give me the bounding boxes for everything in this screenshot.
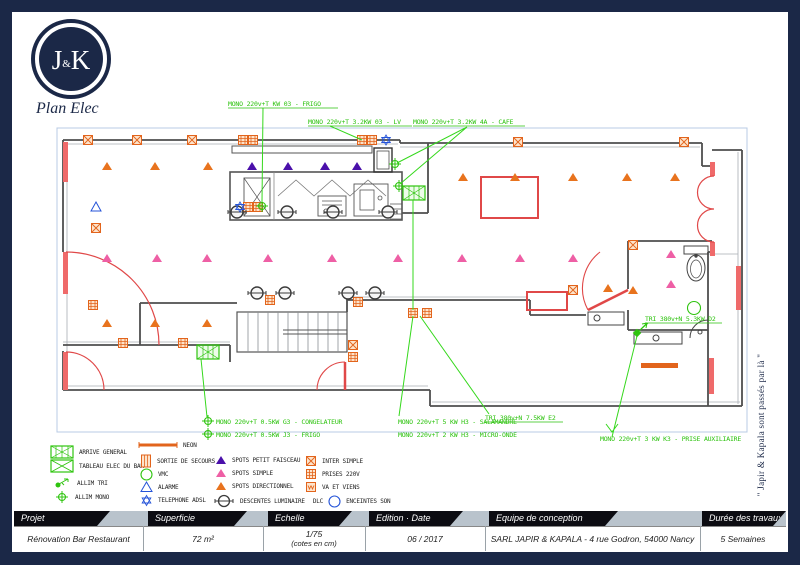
spots-simples [102,250,676,288]
alarme-icon [140,481,153,493]
titleblock-value-projet: Rénovation Bar Restaurant [14,526,143,551]
spots-petit-faisceau [247,162,362,170]
spot-petit-faisceau-icon [215,455,227,465]
arrive-general-symbol [197,345,219,359]
echelle-unit-note: (cotes en cm) [263,539,365,548]
legend-label: SORTIE DE SECOURS [157,458,215,465]
annotation-lv: MONO 220v+T 3.2KW 03 - LV [308,118,401,126]
titleblock-header-edition: Edition · Date [369,511,463,526]
legend-item-spots-simple: SPOTS SIMPLE [215,468,273,478]
annotation-cafe: MONO 220v+T 3.2KW 4A - CAFE [413,118,514,126]
arrive-general-icon [50,445,74,459]
dlc-tag: DLC [313,498,323,505]
telephone-adsl-icon [140,494,153,507]
prises-220v-icon [305,468,317,480]
legend-label: ALLIM MONO [75,494,109,501]
legend-item-vaviens: VA ET VIENS [305,481,360,493]
legend-item-allim-mono: ALLIM MONO [54,490,109,504]
titleblock-header-duree: Durée des travaux [702,511,786,526]
legend-label: TABLEAU ELEC DU BAR [79,463,144,470]
annotation-prise-aux: MONO 220v+T 3 KW K3 - PRISE AUXILIAIRE [600,435,741,443]
superficie-value: 72 m² [143,534,263,544]
spot-directionnel-icon [215,481,227,491]
red-zone-rect [481,177,538,218]
titleblock-value-superficie: 72 m² [143,526,263,551]
legend-item-spots-petit: SPOTS PETIT FAISCEAU [215,455,300,465]
titleblock-header-projet: Projet [14,511,110,526]
legend-label: INTER SIMPLE [322,458,363,465]
legend-label: ENCEINTES SON [346,498,390,505]
titleblock-value-equipe: SARL JAPIR & KAPALA - 4 rue Godron, 5400… [485,526,700,551]
echelle-value: 1/75 [263,529,365,539]
neon-symbol [641,363,678,368]
allim-mono-icon [54,490,70,504]
neon-icon [138,441,178,449]
edition-date-value: 06 / 2017 [365,534,485,544]
floor-plan: MONO 220v+T KW 03 - FRIGO MONO 220v+T 3.… [0,0,800,565]
vmc-symbol [688,302,701,315]
va-et-viens-icon [305,481,317,493]
inter-simple-icon [305,455,317,467]
duree-value: 5 Semaines [700,534,786,544]
annotation-congelateur: MONO 220v+T 0.5KW G3 - CONGELATEUR [216,418,343,426]
legend-label: SPOTS DIRECTIONNEL [232,483,293,490]
stairs [237,312,347,352]
legend-item-vmc: VMC [140,468,168,481]
enceintes-son-icon [328,495,341,508]
inter-simple-symbols [84,136,689,350]
legend-label: NEON [183,442,197,449]
annotation-frigo-top: MONO 220v+T KW 03 - FRIGO [228,100,321,108]
alarme-symbol [91,202,101,211]
annotation-tri-53: TRI 380v+N 5.3KW D2 [645,315,716,323]
titleblock-value-duree: 5 Semaines [700,526,786,551]
legend-label: VMC [158,471,168,478]
legend-item-alarme: ALARME [140,481,178,493]
legend-item-tableau: TABLEAU ELEC DU BAR [50,459,144,473]
titleblock-header-superficie: Superficie [148,511,247,526]
vmc-icon [140,468,153,481]
annotation-tri-75: TRI 380v+N 7.5KW E2 [485,414,556,422]
equipe-value: SARL JAPIR & KAPALA - 4 rue Godron, 5400… [485,534,700,544]
legend-label: VA ET VIENS [322,484,360,491]
legend-label: SPOTS SIMPLE [232,470,273,477]
legend-item-neon: NEON [138,441,197,449]
titleblock-header-equipe: Equipe de conception [489,511,618,526]
legend-item-adsl: TELEPHONE ADSL [140,494,206,507]
titleblock-value-echelle: 1/75(cotes en cm) [263,526,365,551]
legend-label: ALARME [158,484,178,491]
red-zone-rect-small [527,292,567,310]
legend-item-descentes-enceintes: DESCENTES LUMINAIRE DLC ENCEINTES SON [213,494,390,508]
projet-value: Rénovation Bar Restaurant [14,534,143,544]
allim-tri-icon [54,477,72,489]
legend-label: SPOTS PETIT FAISCEAU [232,457,300,464]
descente-luminaire-icon [213,494,235,508]
legend-label: PRISES 220V [322,471,360,478]
legend-label: ALLIM TRI [77,480,108,487]
circuit-annotations: MONO 220v+T KW 03 - FRIGO MONO 220v+T 3.… [216,100,741,443]
titleblock-header-echelle: Echelle [268,511,352,526]
tableau-elec-icon [50,459,74,473]
annotation-frigo-bottom: MONO 220v+T 0.5KW J3 - FRIGO [216,431,320,439]
legend-item-allim-tri: ALLIM TRI [54,477,108,489]
telephone-adsl-symbols [236,135,391,212]
annotation-micro-onde: MONO 220v+T 2 KW H3 - MICRO-ONDE [398,431,517,439]
legend-label: DESCENTES LUMINAIRE [240,498,305,505]
legend-label: TELEPHONE ADSL [158,497,206,504]
legend-item-spots-dir: SPOTS DIRECTIONNEL [215,481,293,491]
legend-item-arrive-general: ARRIVE GENERAL [50,445,127,459]
legend-item-inter: INTER SIMPLE [305,455,363,467]
tableau-elec-du-bar-symbol [403,186,425,200]
sortie-secours-icon [140,454,152,468]
legend-label: ARRIVE GENERAL [79,449,127,456]
legend-item-prises: PRISES 220V [305,468,360,480]
spot-simple-icon [215,468,227,478]
titleblock-value-edition: 06 / 2017 [365,526,485,551]
legend-item-sortie: SORTIE DE SECOURS [140,454,215,468]
